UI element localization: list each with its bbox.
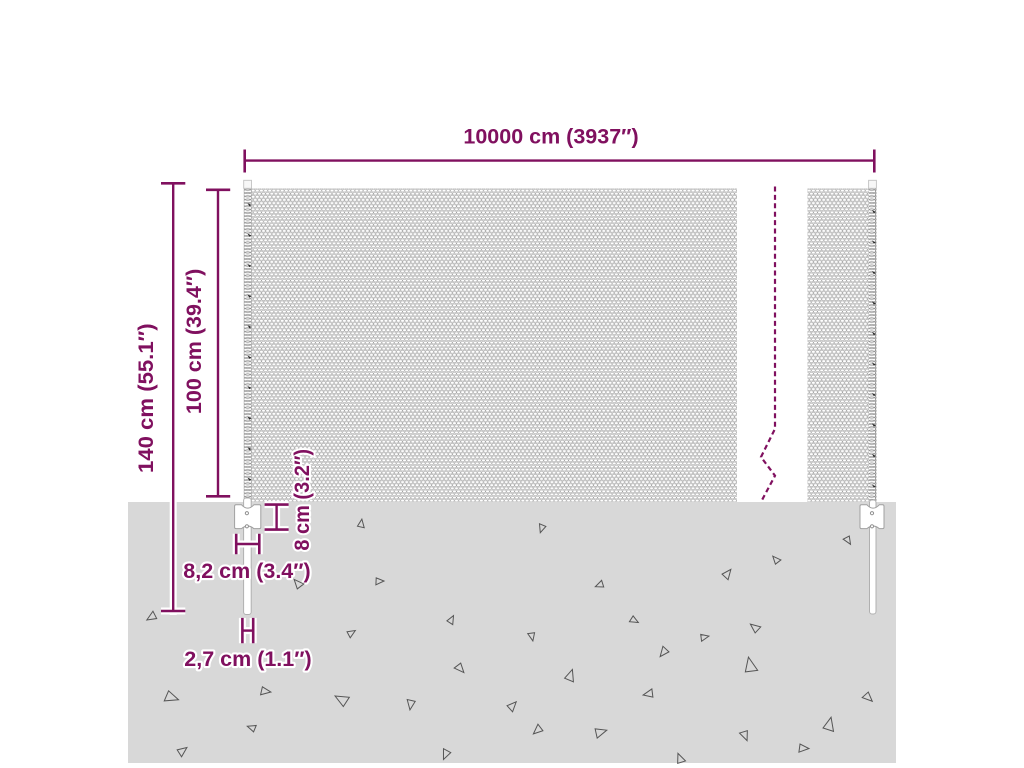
svg-text:8 cm (3.2″): 8 cm (3.2″)	[290, 449, 314, 551]
svg-text:100 cm (39.4″): 100 cm (39.4″)	[182, 269, 206, 414]
svg-text:2,7 cm (1.1″): 2,7 cm (1.1″)	[184, 647, 311, 671]
svg-text:10000 cm (3937″): 10000 cm (3937″)	[463, 125, 638, 149]
svg-text:8,2 cm (3.4″): 8,2 cm (3.4″)	[183, 559, 310, 583]
svg-text:140 cm (55.1″): 140 cm (55.1″)	[133, 323, 158, 473]
